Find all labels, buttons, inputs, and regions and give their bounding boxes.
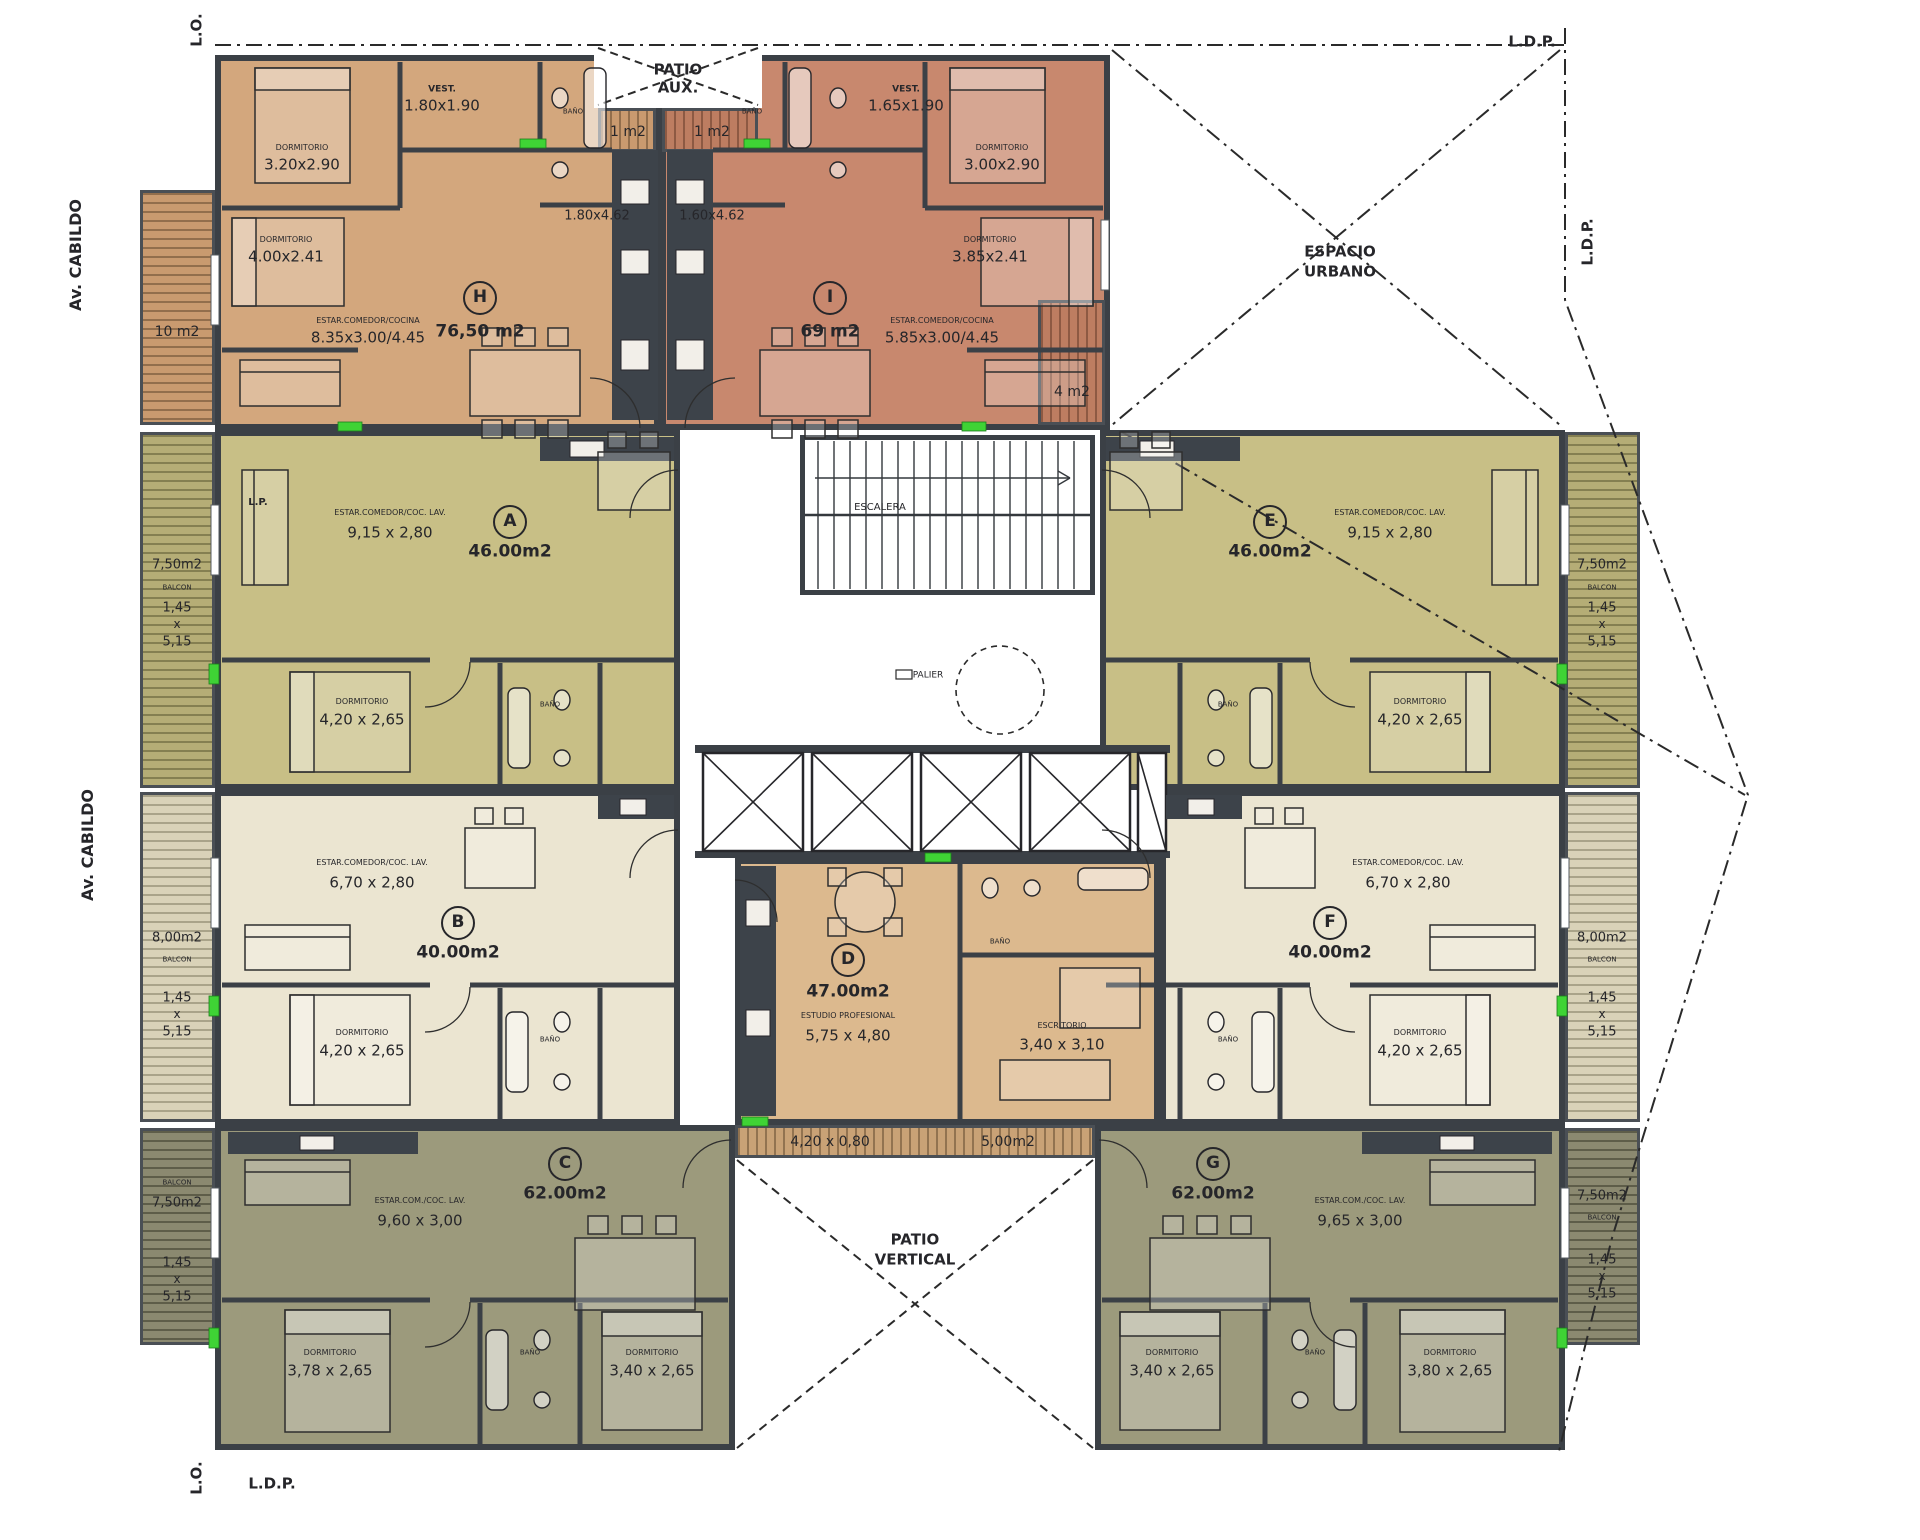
plan-label: x xyxy=(173,1273,180,1285)
plan-label: 7,50m2 xyxy=(152,1197,202,1210)
plan-label: ESTAR.COMEDOR/COCINA xyxy=(890,317,994,325)
plan-label: ESCRITORIO xyxy=(1037,1022,1086,1030)
plan-label: 7,50m2 xyxy=(152,559,202,572)
plan-label: ESPACIO xyxy=(1304,245,1376,260)
plan-label: ESTAR.COM./COC. LAV. xyxy=(1315,1197,1406,1205)
plan-label: 3,40 x 2,65 xyxy=(1129,1364,1214,1379)
elevator-core xyxy=(695,745,1170,858)
plan-label: BALCON xyxy=(162,585,191,592)
plan-label: DORMITORIO xyxy=(1146,1349,1199,1357)
plan-label: 1.60x4.62 xyxy=(679,210,745,223)
plan-label: DORMITORIO xyxy=(1394,698,1447,706)
plan-label: BALCON xyxy=(162,957,191,964)
plan-label: 40.00m2 xyxy=(1288,945,1371,962)
plan-label: x xyxy=(1598,618,1605,630)
plan-label: ESTAR.COMEDOR/COC. LAV. xyxy=(1334,509,1445,517)
plan-label: 10 m2 xyxy=(155,325,200,339)
plan-label: BAÑO xyxy=(540,702,560,709)
unit-badge-e: E xyxy=(1253,505,1287,539)
plan-label: DORMITORIO xyxy=(260,236,313,244)
plan-label: 5,15 xyxy=(163,636,192,649)
plan-label: BAÑO xyxy=(1305,1350,1325,1357)
plan-linework xyxy=(0,0,1920,1540)
plan-label: DORMITORIO xyxy=(976,144,1029,152)
plan-label: ESTAR.COMEDOR/COC. LAV. xyxy=(316,859,427,867)
plan-label: 4 m2 xyxy=(1054,385,1090,399)
plan-label: 1,45 xyxy=(1588,1254,1617,1267)
plan-label: VEST. xyxy=(428,86,456,95)
plan-label: 1,45 xyxy=(163,992,192,1005)
plan-label: L.O. xyxy=(190,13,205,46)
plan-label: x xyxy=(173,618,180,630)
plan-label: DORMITORIO xyxy=(276,144,329,152)
plan-label: 7,50m2 xyxy=(1577,559,1627,572)
plan-label: 5,15 xyxy=(1588,636,1617,649)
plan-label: 3,78 x 2,65 xyxy=(287,1364,372,1379)
plan-label: ESTAR.COM./COC. LAV. xyxy=(375,1197,466,1205)
plan-label: 69 m2 xyxy=(800,324,859,341)
plan-label: 62.00m2 xyxy=(1171,1186,1254,1203)
plan-label: BALCON xyxy=(1587,957,1616,964)
plan-label: 9,15 x 2,80 xyxy=(1347,526,1432,541)
plan-label: 3.85x2.41 xyxy=(952,250,1028,265)
plan-label: 1.80x1.90 xyxy=(404,99,480,114)
patio-vertical-cross xyxy=(737,1160,1093,1448)
plan-label: URBANO xyxy=(1304,265,1376,280)
plan-label: BAÑO xyxy=(742,109,762,116)
plan-label: 3,40 x 2,65 xyxy=(609,1364,694,1379)
plan-label: 9,65 x 3,00 xyxy=(1317,1214,1402,1229)
plan-label: 40.00m2 xyxy=(416,945,499,962)
unit-badge-h: H xyxy=(463,281,497,315)
plan-label: 1 m2 xyxy=(694,125,730,139)
plan-label: 9,15 x 2,80 xyxy=(347,526,432,541)
plan-label: L.D.P. xyxy=(248,1477,295,1492)
plan-label: 4,20 x 2,65 xyxy=(319,713,404,728)
plan-label: DORMITORIO xyxy=(1394,1029,1447,1037)
plan-label: ESTAR.COMEDOR/COCINA xyxy=(316,317,420,325)
unit-badge-b: B xyxy=(441,906,475,940)
plan-label: x xyxy=(1598,1008,1605,1020)
plan-label: Av. CABILDO xyxy=(80,789,96,901)
plan-label: L.O. xyxy=(190,1461,205,1494)
plan-label: VERTICAL xyxy=(875,1253,956,1268)
plan-label: 3,80 x 2,65 xyxy=(1407,1364,1492,1379)
kitchen-counters xyxy=(228,150,1552,1154)
plan-label: 8.35x3.00/4.45 xyxy=(311,331,425,346)
plan-label: 3,40 x 3,10 xyxy=(1019,1038,1104,1053)
plan-label: VEST. xyxy=(892,86,920,95)
plan-label: 5,15 xyxy=(1588,1288,1617,1301)
plan-label: 3.20x2.90 xyxy=(264,158,340,173)
plan-label: 1,45 xyxy=(163,602,192,615)
plan-label: Av. CABILDO xyxy=(68,199,84,311)
plan-label: 4,20 x 2,65 xyxy=(1377,713,1462,728)
plan-label: DORMITORIO xyxy=(336,698,389,706)
plan-label: 5,15 xyxy=(1588,1026,1617,1039)
plan-label: 46.00m2 xyxy=(468,544,551,561)
plan-label: ESTAR.COMEDOR/COC. LAV. xyxy=(1352,859,1463,867)
plan-label: DORMITORIO xyxy=(964,236,1017,244)
plan-label: 3.00x2.90 xyxy=(964,158,1040,173)
plan-label: BAÑO xyxy=(540,1037,560,1044)
plan-label: 4,20 x 2,65 xyxy=(319,1044,404,1059)
unit-badge-i: I xyxy=(813,281,847,315)
unit-badge-d: D xyxy=(831,943,865,977)
plan-label: x xyxy=(1598,1270,1605,1282)
plan-label: 4,20 x 0,80 xyxy=(790,1135,870,1149)
plan-label: PATIO xyxy=(891,1233,940,1248)
plan-label: L.D.P. xyxy=(1581,218,1596,265)
plan-label: 7,50m2 xyxy=(1577,1190,1627,1203)
plan-label: BALCON xyxy=(1587,1215,1616,1222)
unit-badge-c: C xyxy=(548,1147,582,1181)
plan-label: DORMITORIO xyxy=(1424,1349,1477,1357)
plan-label: 4.00x2.41 xyxy=(248,250,324,265)
stairs xyxy=(805,441,1090,589)
plan-label: x xyxy=(173,1008,180,1020)
plan-label: 1,45 xyxy=(1588,992,1617,1005)
plan-label: BAÑO xyxy=(990,939,1010,946)
plan-label: 47.00m2 xyxy=(806,984,889,1001)
plan-label: 1,45 xyxy=(1588,602,1617,615)
plan-label: ESCALERA xyxy=(854,503,906,513)
plan-label: 1.65x1.90 xyxy=(868,99,944,114)
plan-label: BAÑO xyxy=(1218,1037,1238,1044)
plan-label: L.P. xyxy=(248,498,267,508)
plan-label: BAÑO xyxy=(563,109,583,116)
unit-badge-g: G xyxy=(1196,1147,1230,1181)
plan-label: 5,75 x 4,80 xyxy=(805,1029,890,1044)
plan-label: 76,50 m2 xyxy=(435,324,524,341)
plan-label: 5,15 xyxy=(163,1291,192,1304)
plan-label: 8,00m2 xyxy=(152,932,202,945)
palier xyxy=(896,646,1044,734)
plan-label: 46.00m2 xyxy=(1228,544,1311,561)
unit-badge-a: A xyxy=(493,505,527,539)
plan-label: 6,70 x 2,80 xyxy=(329,876,414,891)
plan-label: AUX. xyxy=(658,81,699,96)
plan-label: DORMITORIO xyxy=(336,1029,389,1037)
plan-label: L.D.P. xyxy=(1508,35,1555,50)
plan-label: 5,00m2 xyxy=(981,1135,1035,1149)
plan-label: 8,00m2 xyxy=(1577,932,1627,945)
plan-label: 62.00m2 xyxy=(523,1186,606,1203)
plan-label: BALCON xyxy=(162,1180,191,1187)
plan-label: ESTAR.COMEDOR/COC. LAV. xyxy=(334,509,445,517)
floor-plan: L.O.Av. CABILDOAv. CABILDOL.D.P.L.D.P.L.… xyxy=(0,0,1920,1540)
plan-label: 4,20 x 2,65 xyxy=(1377,1044,1462,1059)
plan-label: DORMITORIO xyxy=(626,1349,679,1357)
plan-label: BALCON xyxy=(1587,585,1616,592)
unit-badge-f: F xyxy=(1313,906,1347,940)
plan-label: PATIO xyxy=(654,63,703,78)
plan-label: BAÑO xyxy=(1218,702,1238,709)
plan-label: PALIER xyxy=(913,672,944,681)
plan-label: BAÑO xyxy=(520,1350,540,1357)
plan-label: 1.80x4.62 xyxy=(564,210,630,223)
plan-label: ESTUDIO PROFESIONAL xyxy=(801,1012,895,1020)
plan-label: DORMITORIO xyxy=(304,1349,357,1357)
plan-label: 5.85x3.00/4.45 xyxy=(885,331,999,346)
plan-label: 1 m2 xyxy=(610,125,646,139)
plan-label: 5,15 xyxy=(163,1026,192,1039)
plan-label: 9,60 x 3,00 xyxy=(377,1214,462,1229)
plan-label: 1,45 xyxy=(163,1257,192,1270)
plan-label: 6,70 x 2,80 xyxy=(1365,876,1450,891)
windows xyxy=(211,220,1569,1258)
